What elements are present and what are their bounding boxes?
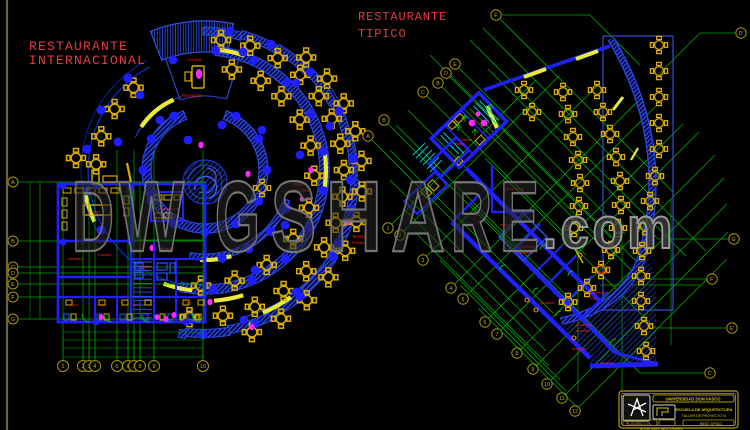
svg-text:11: 11 — [559, 396, 564, 402]
svg-text:4: 4 — [93, 364, 96, 370]
svg-text:G: G — [215, 161, 260, 273]
svg-text:E: E — [453, 62, 457, 68]
svg-text:E: E — [500, 161, 539, 273]
svg-text:B: B — [382, 118, 386, 124]
svg-text:G: G — [11, 317, 15, 323]
svg-text:R: R — [451, 161, 492, 273]
svg-text:Comedor: Comedor — [590, 290, 607, 295]
svg-text:UNIVERSIDAD DON VASCO: UNIVERSIDAD DON VASCO — [665, 396, 721, 401]
svg-text:D: D — [444, 71, 448, 77]
svg-text:B: B — [436, 81, 440, 87]
svg-text:W: W — [119, 161, 184, 273]
svg-text:RESTAURANTE: RESTAURANTE — [29, 39, 128, 54]
svg-text:w.c.: w.c. — [133, 303, 140, 307]
svg-text:F: F — [494, 13, 497, 19]
svg-text:E′: E′ — [730, 326, 734, 332]
svg-text:Barra: Barra — [455, 141, 466, 146]
svg-text:8: 8 — [516, 351, 519, 357]
svg-text:12: 12 — [572, 409, 578, 415]
svg-text:7: 7 — [496, 332, 499, 338]
svg-text:Almacen: Almacen — [540, 300, 556, 305]
svg-text:RESTAURANTE: RESTAURANTE — [358, 10, 447, 24]
svg-text:5: 5 — [115, 364, 118, 370]
svg-text:eventos: eventos — [576, 328, 590, 333]
svg-text:5: 5 — [462, 297, 465, 303]
svg-text:Acceso: Acceso — [600, 360, 614, 365]
svg-text:ESCUELA DE ARQUITECTURA: ESCUELA DE ARQUITECTURA — [676, 407, 733, 412]
svg-text:PL-01 ESC 1:75: PL-01 ESC 1:75 — [626, 422, 651, 426]
svg-text:H: H — [326, 161, 382, 273]
svg-text:9: 9 — [532, 367, 535, 373]
svg-text:A: A — [11, 180, 15, 186]
svg-text:Auditorio: Auditorio — [576, 322, 593, 327]
svg-text:G′: G′ — [732, 237, 737, 243]
svg-text:F′: F′ — [710, 277, 714, 283]
svg-text:mesas: mesas — [596, 270, 608, 275]
svg-text:10: 10 — [544, 382, 550, 388]
svg-text:w.c.: w.c. — [98, 303, 105, 307]
svg-text:Cocina: Cocina — [188, 57, 202, 62]
svg-text:w.c.: w.c. — [186, 301, 193, 305]
svg-text:4: 4 — [450, 286, 453, 292]
svg-text:B: B — [11, 239, 15, 245]
svg-text:C′: C′ — [708, 371, 713, 377]
svg-text:D: D — [11, 271, 15, 277]
svg-text:Recepcion: Recepcion — [182, 93, 202, 98]
svg-text:REST. TIPICO: REST. TIPICO — [700, 422, 722, 426]
svg-text:1: 1 — [387, 226, 390, 232]
svg-text:D′: D′ — [739, 31, 744, 37]
svg-text:INTERNACIONAL: INTERNACIONAL — [29, 53, 146, 68]
svg-text:Bodega: Bodega — [572, 346, 587, 351]
svg-text:D: D — [72, 161, 114, 273]
svg-text:w.c.: w.c. — [72, 303, 79, 307]
svg-text:TIPICO: TIPICO — [358, 27, 407, 41]
svg-text:C: C — [421, 90, 425, 96]
svg-text:S: S — [271, 161, 316, 273]
svg-text:10: 10 — [200, 364, 206, 370]
svg-text:Priv.: Priv. — [590, 296, 598, 301]
svg-text:TALLER DE PROYECTO III: TALLER DE PROYECTO III — [682, 414, 726, 418]
svg-text:Area de: Area de — [596, 264, 611, 269]
svg-text:9: 9 — [152, 364, 155, 370]
svg-text:A: A — [391, 161, 445, 273]
svg-text:A: A — [366, 134, 370, 140]
svg-text:6: 6 — [484, 320, 487, 326]
svg-text:E: E — [11, 282, 15, 288]
svg-text:.com: .com — [543, 196, 676, 261]
svg-text:8: 8 — [138, 364, 141, 370]
svg-text:1: 1 — [61, 364, 64, 370]
